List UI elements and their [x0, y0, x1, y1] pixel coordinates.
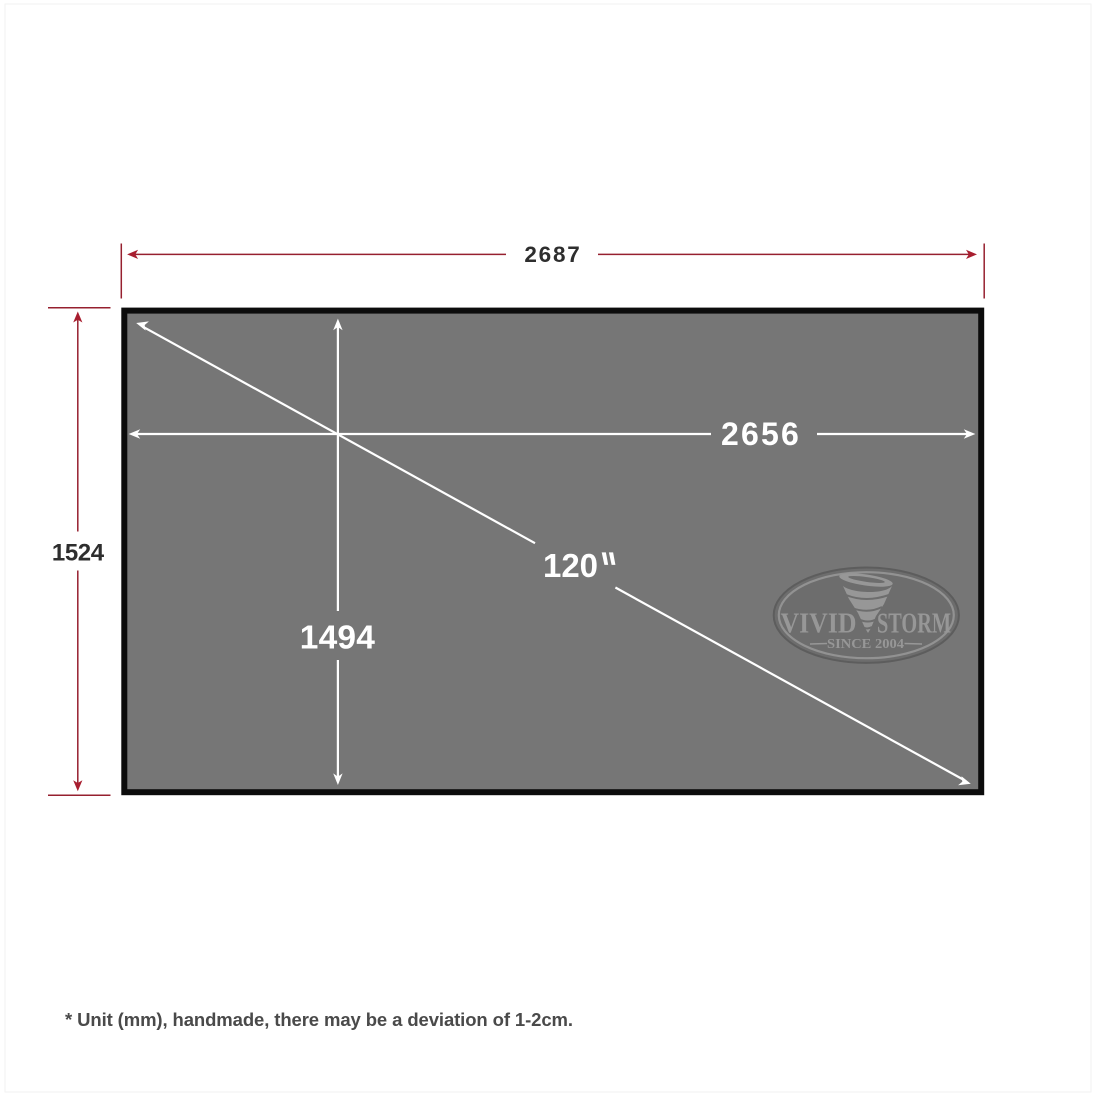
- svg-text:* Unit (mm), handmade, there m: * Unit (mm), handmade, there may be a de…: [65, 1009, 573, 1030]
- svg-text:2687: 2687: [524, 242, 581, 267]
- svg-text:2656: 2656: [721, 416, 801, 452]
- svg-text:1524: 1524: [52, 540, 105, 567]
- svg-text:1494: 1494: [300, 619, 375, 656]
- svg-text:SINCE 2004: SINCE 2004: [827, 636, 904, 651]
- svg-text:120: 120: [543, 547, 598, 584]
- svg-text:VIVID: VIVID: [781, 608, 857, 640]
- svg-text:STORM: STORM: [877, 608, 951, 640]
